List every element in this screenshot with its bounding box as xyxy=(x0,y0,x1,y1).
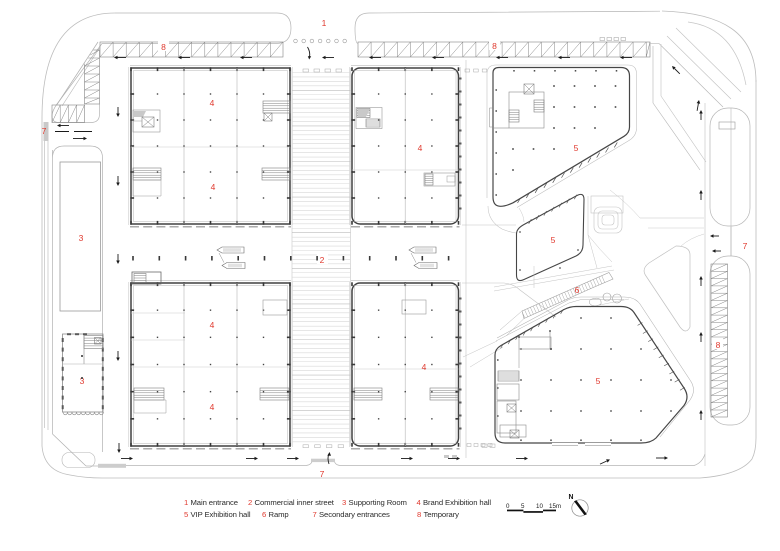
svg-text:7: 7 xyxy=(320,469,325,479)
svg-text:4: 4 xyxy=(422,362,427,372)
svg-text:15m: 15m xyxy=(549,503,561,510)
svg-text:3: 3 xyxy=(79,233,84,243)
svg-text:1: 1 xyxy=(184,498,188,507)
svg-text:6: 6 xyxy=(575,285,580,295)
svg-text:7: 7 xyxy=(42,126,47,136)
svg-text:8: 8 xyxy=(716,340,721,350)
svg-text:Secondary entrances: Secondary entrances xyxy=(319,510,390,519)
svg-text:3: 3 xyxy=(342,498,346,507)
svg-text:Brand Exhibition hall: Brand Exhibition hall xyxy=(423,498,491,507)
svg-text:6: 6 xyxy=(262,510,266,519)
svg-text:5: 5 xyxy=(551,235,556,245)
svg-text:5: 5 xyxy=(574,143,579,153)
svg-text:1: 1 xyxy=(322,18,327,28)
svg-text:5: 5 xyxy=(596,376,601,386)
svg-text:4: 4 xyxy=(418,143,423,153)
svg-text:8: 8 xyxy=(417,510,421,519)
svg-text:4: 4 xyxy=(211,182,216,192)
svg-text:Main entrance: Main entrance xyxy=(191,498,238,507)
svg-text:2: 2 xyxy=(320,255,325,265)
svg-text:N: N xyxy=(569,494,574,501)
svg-text:4: 4 xyxy=(210,320,215,330)
svg-text:Ramp: Ramp xyxy=(269,510,289,519)
svg-text:5: 5 xyxy=(521,503,525,510)
svg-text:4: 4 xyxy=(210,98,215,108)
svg-text:5: 5 xyxy=(184,510,188,519)
svg-text:10: 10 xyxy=(536,503,543,510)
svg-text:Commercial inner street: Commercial inner street xyxy=(255,498,335,507)
svg-text:7: 7 xyxy=(313,510,317,519)
svg-text:8: 8 xyxy=(492,41,497,51)
svg-text:8: 8 xyxy=(161,42,166,52)
svg-text:2: 2 xyxy=(248,498,252,507)
svg-text:Temporary: Temporary xyxy=(424,510,460,519)
svg-text:VIP Exhibition hall: VIP Exhibition hall xyxy=(191,510,251,519)
svg-text:7: 7 xyxy=(743,241,748,251)
svg-text:Supporting Room: Supporting Room xyxy=(349,498,407,507)
svg-text:0: 0 xyxy=(506,503,510,510)
svg-text:4: 4 xyxy=(210,402,215,412)
